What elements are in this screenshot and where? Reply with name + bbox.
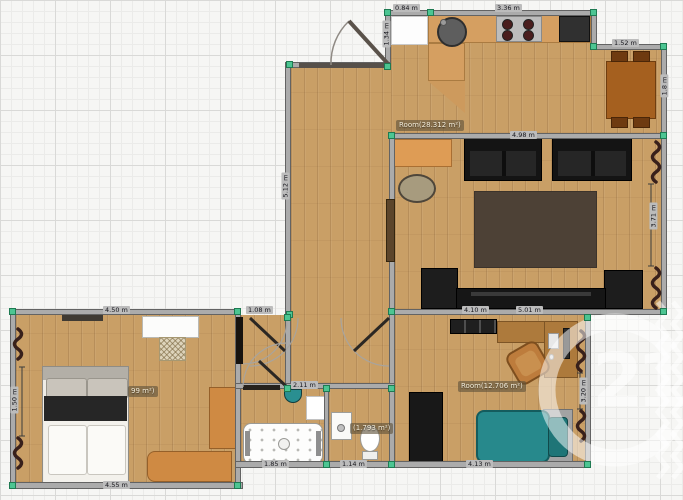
dim-dining-top: 1.52 m <box>612 39 639 47</box>
wall-handle[interactable] <box>286 61 293 68</box>
wall-handle[interactable] <box>660 308 667 315</box>
plan-overlay <box>0 0 683 500</box>
wall-handle[interactable] <box>388 132 395 139</box>
room-label-open-plan: Room(28.312 m²) <box>396 120 464 131</box>
curtain-bedroom-bottom[interactable] <box>15 438 22 468</box>
wall-handle[interactable] <box>323 461 330 468</box>
wall-handle[interactable] <box>590 9 597 16</box>
wall-handle[interactable] <box>584 314 591 321</box>
wall-handle[interactable] <box>660 43 667 50</box>
dim-living-right: 3.71 m <box>649 203 657 230</box>
wall-handle[interactable] <box>384 63 391 70</box>
entry-door-arc <box>331 21 349 65</box>
watermark-c-ring <box>547 322 671 458</box>
dim-bedroom-top: 4.50 m <box>103 306 130 314</box>
curtain-office-bottom[interactable] <box>578 411 585 441</box>
dim-hall-left: 5.12 m <box>281 173 289 200</box>
dim-line <box>19 367 25 436</box>
dim-office-bottom: 4.13 m <box>466 460 493 468</box>
wall-handle[interactable] <box>584 461 591 468</box>
room-label-office: Room(12.706 m²) <box>458 381 526 392</box>
wall-handle[interactable] <box>323 385 330 392</box>
dim-office-right: 3.20 m <box>579 378 587 405</box>
door-leaf[interactable] <box>354 318 389 351</box>
dim-bath-bottom-left: 1.85 m <box>262 460 289 468</box>
door-arc <box>243 320 287 364</box>
wall-handle[interactable] <box>384 9 391 16</box>
dim-office-top: 4.10 m <box>462 306 489 314</box>
curtain-living-top[interactable] <box>653 142 660 182</box>
door-leaf[interactable] <box>259 361 287 387</box>
dim-living-bottom: 5.01 m <box>516 306 543 314</box>
door-leaf[interactable] <box>250 318 285 351</box>
dim-bedroom-bottom: 4.55 m <box>103 481 130 489</box>
wall-handle[interactable] <box>388 308 395 315</box>
dim-kitchen-top-b: 3.36 m <box>495 4 522 12</box>
floor-plan-canvas[interactable]: 0.84 m 3.36 m 1.34 m 1.52 m 1.8 m 4.98 m… <box>0 0 683 500</box>
watermark-zigzag <box>658 302 667 478</box>
wall-handle[interactable] <box>234 482 241 489</box>
dim-bedroom-left: 1.50 m <box>10 387 18 414</box>
wall-handle[interactable] <box>9 482 16 489</box>
wall-handle[interactable] <box>9 308 16 315</box>
dim-living-top: 4.98 m <box>510 131 537 139</box>
wall-handle[interactable] <box>388 461 395 468</box>
wall-handle[interactable] <box>284 385 291 392</box>
curtain-bedroom-top[interactable] <box>15 329 22 359</box>
wall-handle[interactable] <box>388 385 395 392</box>
wall-handle[interactable] <box>590 43 597 50</box>
wall-handle[interactable] <box>234 308 241 315</box>
dim-corridor-top: 1.08 m <box>246 306 273 314</box>
wall-handle[interactable] <box>427 9 434 16</box>
room-label-bedroom-fragment: 99 m²) <box>128 386 158 397</box>
wall-handle[interactable] <box>660 132 667 139</box>
wall-handle[interactable] <box>284 314 291 321</box>
dim-kitchen-top-a: 0.84 m <box>393 4 420 12</box>
dim-kitchen-left: 1.34 m <box>382 21 390 48</box>
watermark-zigzag <box>673 302 682 478</box>
dim-bathroom-top: 2.11 m <box>291 381 318 389</box>
dim-dining-right: 1.8 m <box>660 75 668 98</box>
dim-bath-bottom-right: 1.14 m <box>340 460 367 468</box>
room-label-bathroom: (1.793 m²) <box>350 423 393 434</box>
